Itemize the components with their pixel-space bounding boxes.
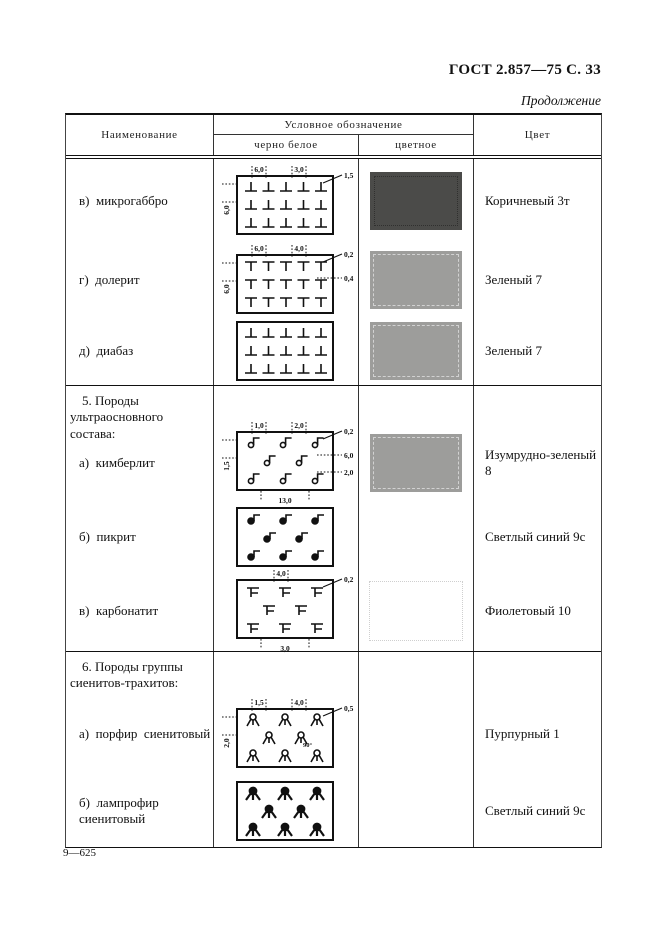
color-swatch — [370, 434, 462, 492]
color-swatch — [370, 172, 462, 230]
color-designation-cell — [359, 570, 474, 651]
table-section: в) микрогаббро6,03,06,01,5Коричневый 3тг… — [66, 159, 601, 386]
color-name: Изумрудно-зеленый 8 — [474, 422, 601, 504]
bw-pattern-svg: 4,00,23,0 — [215, 567, 357, 655]
svg-text:1,0: 1,0 — [254, 421, 264, 430]
svg-text:6,0: 6,0 — [254, 165, 264, 174]
svg-text:0,2: 0,2 — [344, 575, 354, 584]
svg-text:0,4: 0,4 — [344, 274, 354, 283]
column-header-black-white: черно белое — [214, 135, 359, 155]
table-section: 6. Породы группы сиенитов-трахитов:а) по… — [66, 652, 601, 847]
bw-designation-cell: 4,00,23,0 — [214, 570, 359, 651]
svg-text:2,0: 2,0 — [222, 738, 231, 748]
bw-designation-cell — [214, 504, 359, 570]
svg-text:6,0: 6,0 — [222, 205, 231, 215]
svg-text:3,0: 3,0 — [294, 165, 304, 174]
color-name: Светлый синий 9с — [474, 504, 601, 570]
color-designation-cell — [359, 504, 474, 570]
rock-name: в) микрогаббро — [66, 159, 214, 243]
table-header: Наименование Условное обозначение черно … — [66, 115, 601, 159]
rock-name: а) кимберлит — [66, 422, 214, 504]
svg-text:6,0: 6,0 — [344, 451, 354, 460]
bw-designation-cell — [214, 317, 359, 385]
bw-pattern-svg: 6,04,06,00,20,4 — [215, 242, 357, 318]
color-designation-cell — [359, 774, 474, 847]
svg-text:4,0: 4,0 — [294, 698, 304, 707]
page-number: 9—625 — [63, 847, 96, 859]
color-name: Коричневый 3т — [474, 159, 601, 243]
table-body: в) микрогаббро6,03,06,01,5Коричневый 3тг… — [66, 159, 601, 847]
svg-text:4,0: 4,0 — [276, 569, 286, 578]
page-title: ГОСТ 2.857—75 С. 33 — [449, 62, 601, 79]
color-swatch — [370, 251, 462, 309]
bw-designation-cell: 1,54,02,00,590° — [214, 694, 359, 774]
column-header-designation: Условное обозначение — [214, 115, 474, 135]
column-header-color: Цвет — [474, 115, 601, 155]
bw-pattern-svg — [215, 317, 357, 385]
ghost-swatch — [369, 581, 463, 641]
section-title-spacer — [214, 386, 359, 422]
svg-text:0,2: 0,2 — [344, 427, 354, 436]
document-page: ГОСТ 2.857—75 С. 33 Продолжение Наименов… — [0, 0, 661, 936]
designation-table: Наименование Условное обозначение черно … — [65, 113, 602, 848]
bw-designation-cell: 1,02,01,50,26,02,013,0 — [214, 422, 359, 504]
section-title-spacer — [214, 652, 359, 694]
svg-text:1,5: 1,5 — [254, 698, 264, 707]
rock-name: б) пикрит — [66, 504, 214, 570]
color-name: Зеленый 7 — [474, 243, 601, 317]
svg-text:2,0: 2,0 — [294, 421, 304, 430]
svg-text:0,5: 0,5 — [344, 704, 354, 713]
bw-designation-cell: 6,03,06,01,5 — [214, 159, 359, 243]
color-designation-cell — [359, 159, 474, 243]
section-title-spacer — [474, 386, 601, 422]
rock-name: а) порфир сиенитовый — [66, 694, 214, 774]
bw-designation-cell: 6,04,06,00,20,4 — [214, 243, 359, 317]
bw-pattern-svg: 1,54,02,00,590° — [215, 696, 357, 772]
section-title: 5. Породы ультраосновного состава: — [66, 386, 214, 422]
bw-pattern-svg: 1,02,01,50,26,02,013,0 — [215, 419, 357, 507]
bw-pattern-svg: 6,03,06,01,5 — [215, 163, 357, 239]
section-title: 6. Породы группы сиенитов-трахитов: — [66, 652, 214, 694]
table-section: 5. Породы ультраосновного состава:а) ким… — [66, 386, 601, 652]
svg-text:6,0: 6,0 — [222, 284, 231, 294]
svg-text:1,5: 1,5 — [222, 461, 231, 471]
svg-text:0,2: 0,2 — [344, 250, 354, 259]
color-name: Светлый синий 9с — [474, 774, 601, 847]
rock-name: в) карбонатит — [66, 570, 214, 651]
section-title-spacer — [359, 652, 474, 694]
svg-text:2,0: 2,0 — [344, 468, 354, 477]
color-name: Фиолетовый 10 — [474, 570, 601, 651]
color-name: Зеленый 7 — [474, 317, 601, 385]
svg-text:4,0: 4,0 — [294, 244, 304, 253]
rock-name: д) диабаз — [66, 317, 214, 385]
color-swatch — [370, 322, 462, 380]
continuation-label: Продолжение — [521, 93, 601, 109]
section-title-spacer — [474, 652, 601, 694]
color-name: Пурпурный 1 — [474, 694, 601, 774]
color-designation-cell — [359, 243, 474, 317]
bw-pattern-svg — [215, 777, 357, 845]
bw-designation-cell — [214, 774, 359, 847]
section-title-spacer — [359, 386, 474, 422]
rock-name: б) лампрофир сиенитовый — [66, 774, 214, 847]
bw-pattern-svg — [215, 503, 357, 571]
column-header-colored: цветное — [359, 135, 474, 155]
rock-name: г) долерит — [66, 243, 214, 317]
color-designation-cell — [359, 422, 474, 504]
color-designation-cell — [359, 317, 474, 385]
svg-text:90°: 90° — [303, 742, 313, 749]
svg-text:6,0: 6,0 — [254, 244, 264, 253]
column-header-name: Наименование — [66, 115, 214, 155]
color-designation-cell — [359, 694, 474, 774]
svg-text:1,5: 1,5 — [344, 171, 354, 180]
